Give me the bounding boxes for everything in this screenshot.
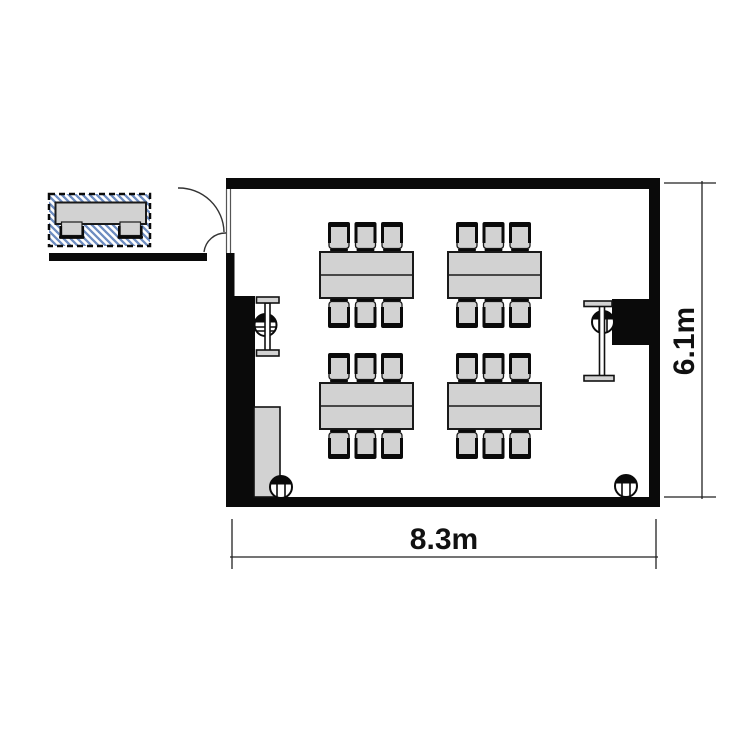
stand-bar [257,350,280,356]
left-wall-pier [226,296,255,497]
table-group [448,222,541,328]
dimension-width: 8.3m [230,519,658,569]
stand-pole [600,306,605,377]
stand-bar [584,376,614,382]
door-swing-large [178,188,224,232]
presenter-stand-left [255,297,280,356]
wall-screen-unit [584,299,649,381]
dimension-height: 6.1m [664,181,716,499]
external-table-zone [49,194,150,246]
door-swing-small [204,233,226,252]
width-dimension-label: 8.3m [410,523,478,556]
table-group [320,353,413,459]
corridor-wall [49,253,207,261]
external-chair [59,222,85,239]
wall-screen [612,299,649,345]
external-table [56,203,147,225]
external-chair [118,222,144,239]
top-wall [226,178,660,189]
height-dimension-label: 6.1m [668,307,701,375]
stand-pole [265,303,270,351]
column-symbol [615,475,637,497]
floor-plan: 6.1m 8.3m [0,0,750,750]
column-symbol [270,476,292,498]
seating-area [320,222,541,459]
bottom-wall [226,497,660,507]
stand-bar [257,297,280,303]
table-group [448,353,541,459]
stand-bar [584,301,612,307]
right-wall [649,178,660,507]
floor-plan-drawing: 6.1m 8.3m [0,0,750,750]
table-group [320,222,413,328]
entrance-door [178,188,231,253]
